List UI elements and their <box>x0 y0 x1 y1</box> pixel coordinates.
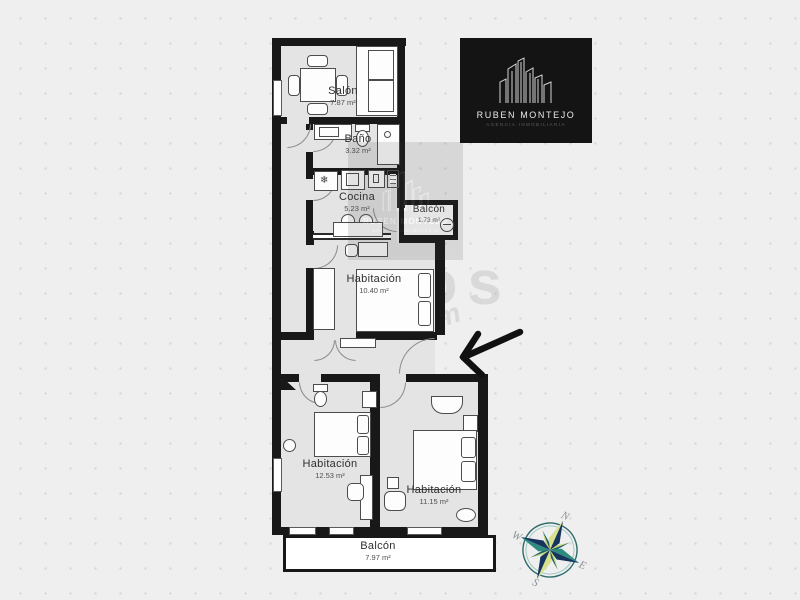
room-label-salon: Salón7.87 m² <box>283 85 403 107</box>
nightstand <box>456 508 476 522</box>
agency-tagline: AGENCIA INMOBILIARIA <box>486 122 566 127</box>
pillow <box>357 436 369 455</box>
pillow <box>418 301 431 326</box>
balcony-door-window <box>407 527 442 535</box>
hall-cabinet <box>340 338 376 348</box>
chair <box>347 483 364 501</box>
snowflake-icon: ❄ <box>320 176 328 186</box>
room-label-habitacion-1: Habitación10.40 m² <box>314 273 434 295</box>
window <box>273 80 282 116</box>
pillow <box>461 461 476 482</box>
nightstand <box>362 391 377 408</box>
room-label-habitacion-2: Habitación12.53 m² <box>270 458 390 480</box>
room-label-balcon-bottom: Balcón7.97 m² <box>318 540 438 562</box>
chair <box>307 55 328 67</box>
chair-seat <box>314 391 327 407</box>
wall <box>478 374 488 535</box>
wall <box>306 175 313 179</box>
desk <box>431 396 463 414</box>
wall <box>281 117 287 124</box>
wall <box>309 117 405 124</box>
wall <box>306 241 314 245</box>
floor-plan: pisos .com <box>0 0 800 600</box>
agency-logo: RUBEN MONTEJO AGENCIA INMOBILIARIA <box>460 38 592 143</box>
compass-n-label: N <box>558 510 571 523</box>
pillow <box>461 437 476 458</box>
sofa-cushion <box>368 50 394 80</box>
compass-w-label: W <box>510 529 524 544</box>
balcony-door-window <box>329 527 354 535</box>
entrance-arrow-icon <box>448 322 530 384</box>
pillow <box>357 415 369 434</box>
agency-name: RUBEN MONTEJO <box>477 110 576 120</box>
compass-icon: N S E W <box>510 510 590 590</box>
wall <box>281 332 314 340</box>
wall-sink <box>283 439 296 452</box>
wall <box>272 38 406 46</box>
compass-s-label: S <box>530 576 540 589</box>
buildings-icon <box>492 55 560 105</box>
wall <box>321 374 373 382</box>
logo-watermark: RUBEN MONTEJO AGENCIA INMOBILIARIA <box>348 142 463 260</box>
balcony-door-window <box>289 527 316 535</box>
compass-e-label: E <box>576 558 588 572</box>
room-label-habitacion-3: Habitación11.15 m² <box>374 484 494 506</box>
